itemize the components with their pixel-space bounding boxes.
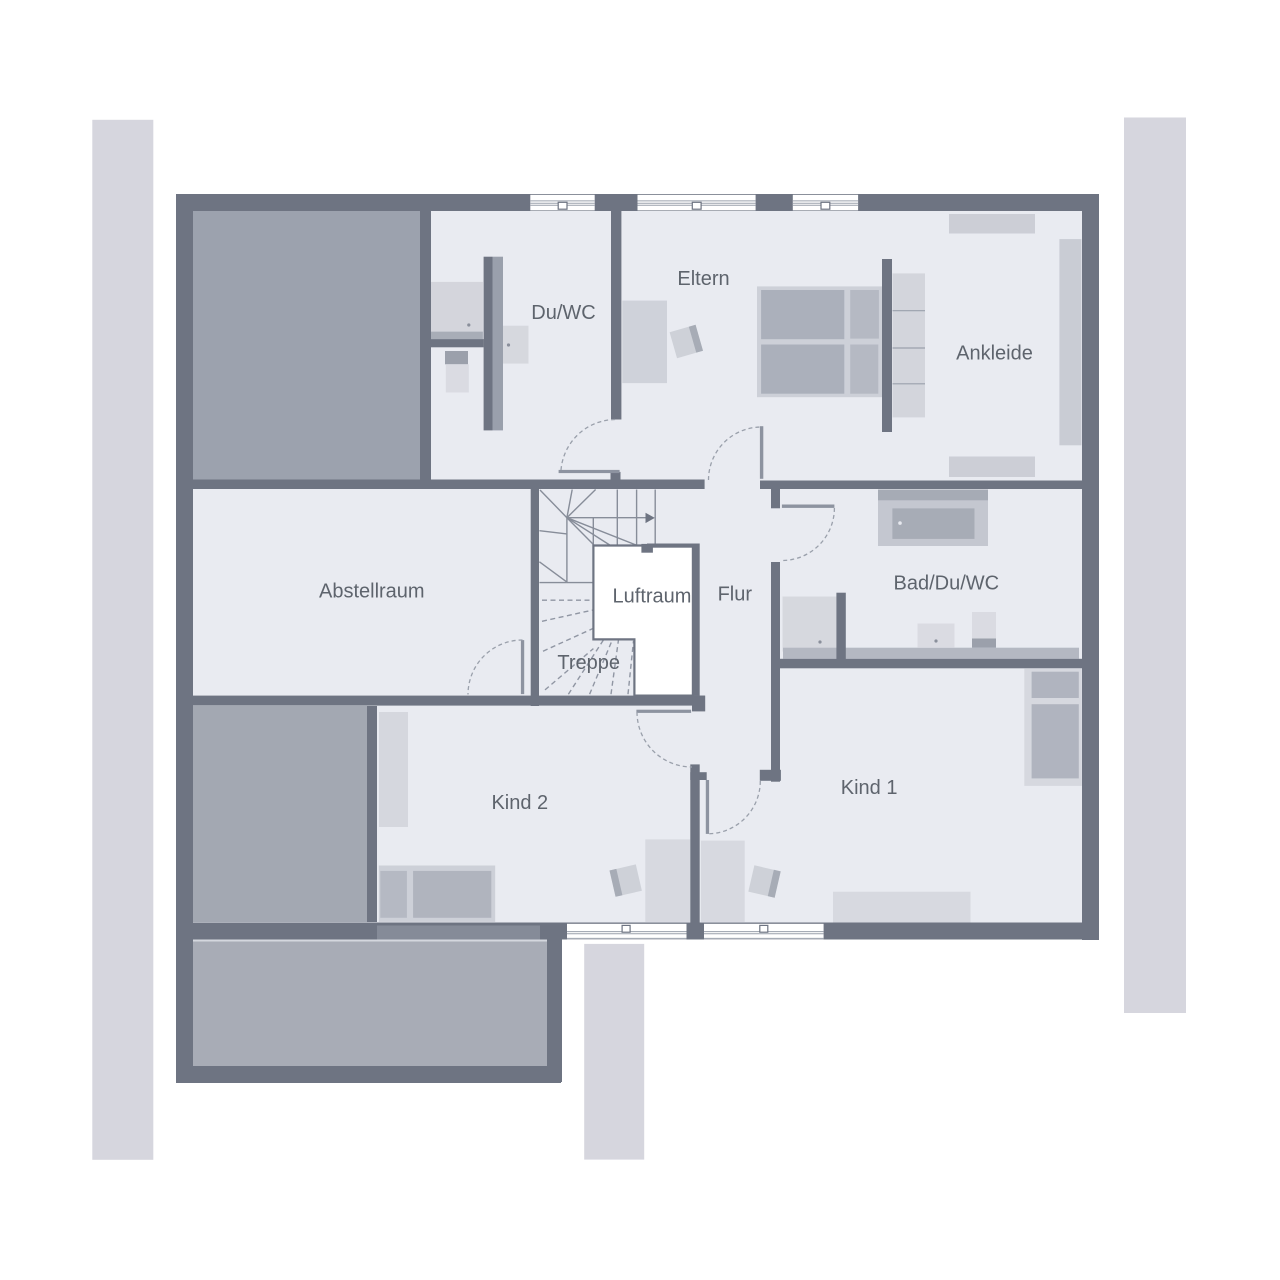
svg-text:Du/WC: Du/WC [531,302,595,324]
svg-text:Kind 2: Kind 2 [491,792,548,814]
svg-text:Bad/Du/WC: Bad/Du/WC [894,573,1000,595]
svg-text:Abstellraum: Abstellraum [319,581,425,603]
svg-text:Kind 1: Kind 1 [841,777,898,799]
svg-text:Flur: Flur [718,584,753,606]
svg-text:Eltern: Eltern [677,268,729,290]
svg-text:Treppe: Treppe [557,652,620,674]
svg-text:Ankleide: Ankleide [956,343,1033,365]
svg-text:Luftraum: Luftraum [613,586,692,608]
